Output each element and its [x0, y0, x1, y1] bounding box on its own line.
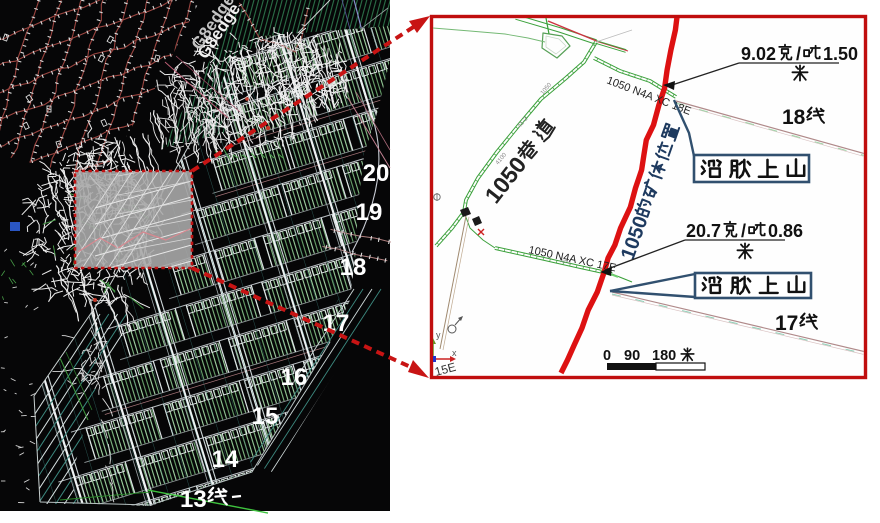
- svg-text:1.50: 1.50: [823, 44, 858, 64]
- svg-text:19: 19: [356, 199, 383, 226]
- svg-text:9.02: 9.02: [741, 44, 776, 64]
- svg-text:18: 18: [340, 254, 367, 281]
- svg-text:20: 20: [363, 160, 390, 187]
- svg-text:x: x: [452, 348, 457, 358]
- svg-text:180: 180: [652, 348, 676, 364]
- svg-text:15: 15: [252, 403, 279, 430]
- svg-text:0: 0: [603, 348, 611, 364]
- svg-text:20.7: 20.7: [686, 221, 721, 241]
- svg-text:17: 17: [775, 312, 798, 335]
- svg-text:14: 14: [212, 446, 239, 473]
- svg-text:16: 16: [281, 364, 308, 391]
- svg-text:/: /: [741, 221, 746, 241]
- svg-text:18: 18: [782, 106, 806, 129]
- svg-text:0.86: 0.86: [768, 221, 803, 241]
- svg-text:90: 90: [624, 348, 640, 364]
- svg-text:y: y: [436, 330, 441, 340]
- svg-text:13: 13: [180, 486, 207, 513]
- svg-text:/: /: [796, 44, 801, 64]
- svg-text:17: 17: [323, 310, 350, 337]
